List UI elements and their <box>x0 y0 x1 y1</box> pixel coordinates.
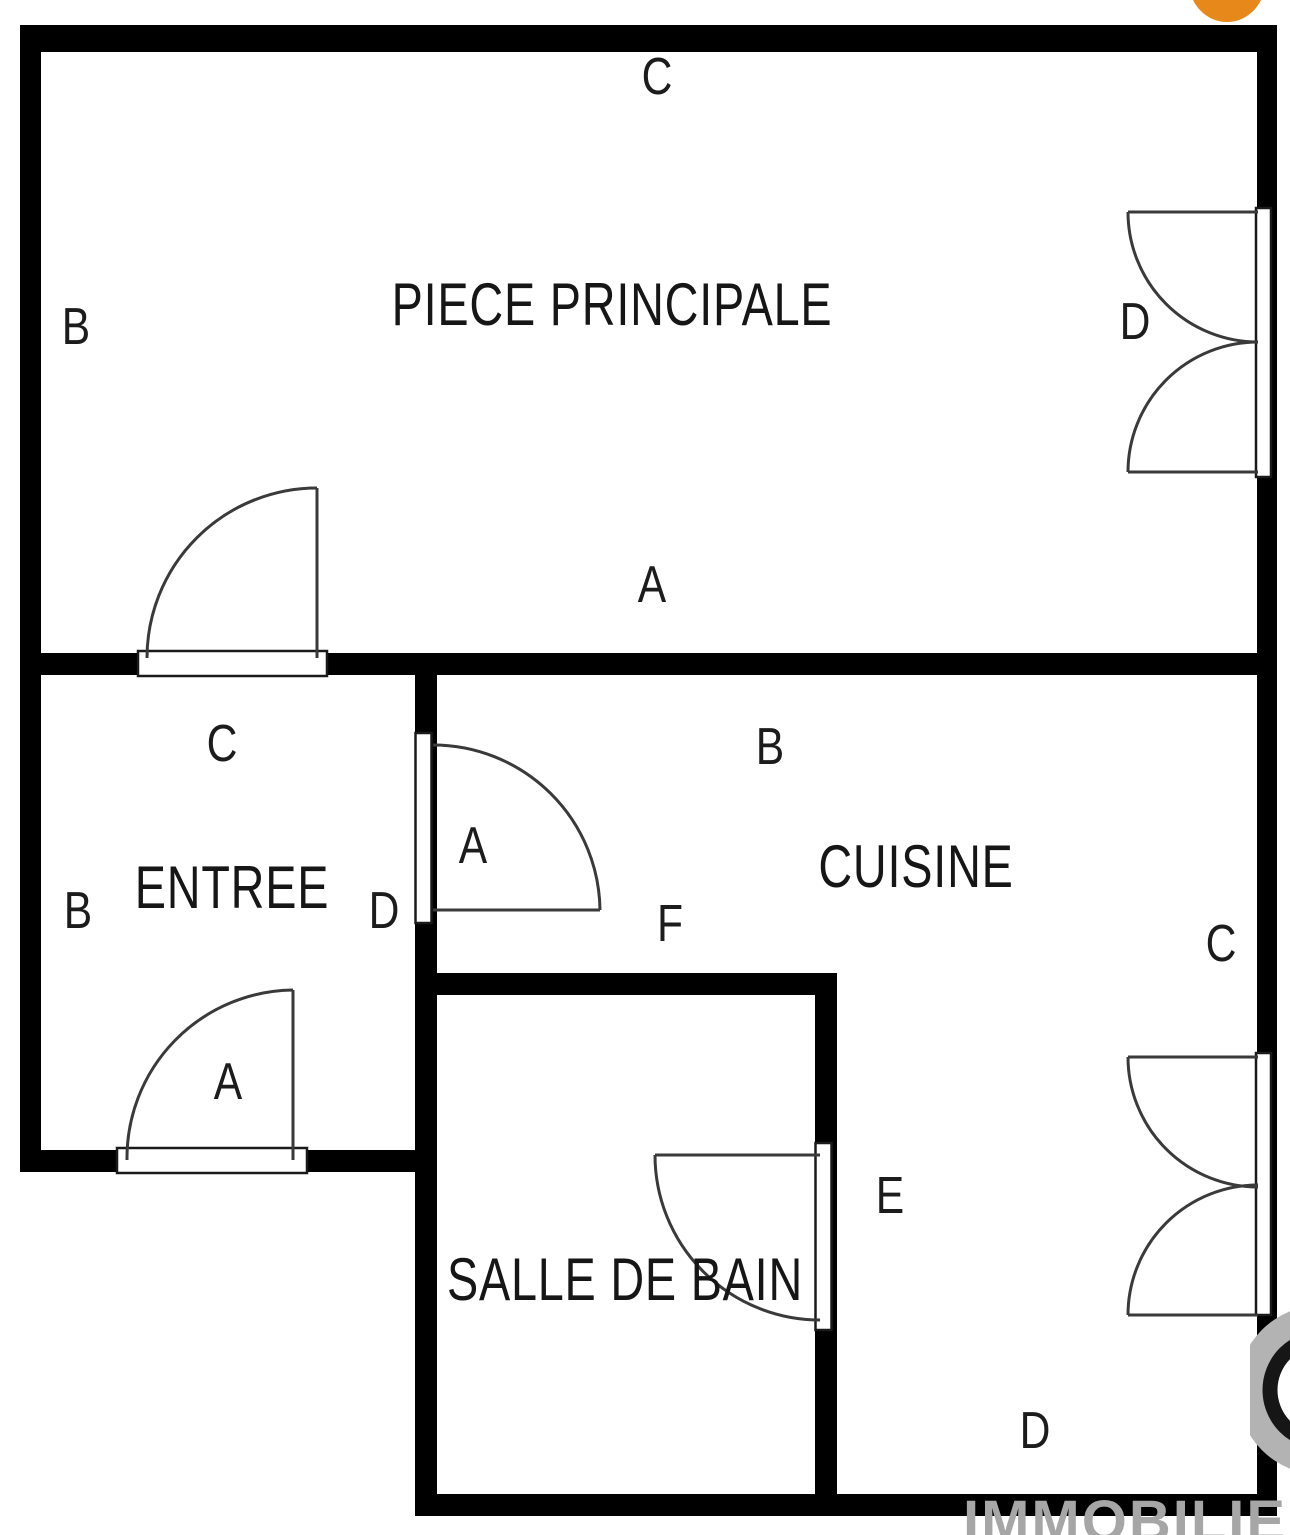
wall-label-cuisine-top: B <box>756 721 784 773</box>
wall-label-entree-left: B <box>64 885 92 937</box>
room-label-salle-de-bain: SALLE DE BAIN <box>447 1250 803 1310</box>
wall-label-cuisine-right: C <box>1206 918 1237 970</box>
door-openings <box>117 208 1271 1330</box>
door-opening-sdb <box>816 1143 832 1330</box>
door-opening-pp-right <box>1256 208 1271 477</box>
room-label-entree: ENTREE <box>135 858 330 918</box>
wall-label-pp-bottom: A <box>638 559 666 611</box>
room-label-piece-principale: PIECE PRINCIPALE <box>392 275 833 335</box>
wall-label-entree-right: D <box>369 885 400 937</box>
door-opening-pp-bottom <box>138 651 327 676</box>
door-arc-cuisine-right-top <box>1128 1057 1258 1187</box>
door-label-entree-cuisine: A <box>459 820 487 872</box>
wall-label-pp-left: B <box>62 301 90 353</box>
brand-logo-dot <box>1189 0 1265 22</box>
door-arc-entree-bottom <box>127 990 293 1160</box>
room-label-cuisine: CUISINE <box>818 837 1013 897</box>
door-opening-entree-right <box>416 733 432 923</box>
wall-label-pp-top: C <box>642 51 673 103</box>
door-arc-pp-right-bottom <box>1128 342 1258 472</box>
floor-plan: IMMOBILIER PIECE PRINCIPALE ENTREE CUISI… <box>0 0 1290 1535</box>
door-label-entree-bottom: A <box>214 1056 242 1108</box>
door-opening-entree-bottom <box>117 1148 307 1173</box>
wall-label-cuisine-center: F <box>657 898 683 950</box>
wall-label-entree-top: C <box>207 718 238 770</box>
wall-outer-left <box>20 25 41 1172</box>
watermark-logo-ring <box>1237 1305 1290 1475</box>
door-arc-pp-bottom <box>147 488 317 658</box>
door-opening-cuisine-right <box>1256 1053 1271 1315</box>
watermark-text: IMMOBILIER <box>963 1489 1290 1535</box>
door-label-pp-right: D <box>1120 296 1151 348</box>
door-label-sdb: E <box>876 1170 904 1222</box>
door-arc-cuisine-right-bottom <box>1128 1185 1258 1315</box>
wall-sdb-top <box>415 973 837 995</box>
door-label-bottom-right: D <box>1020 1405 1051 1457</box>
